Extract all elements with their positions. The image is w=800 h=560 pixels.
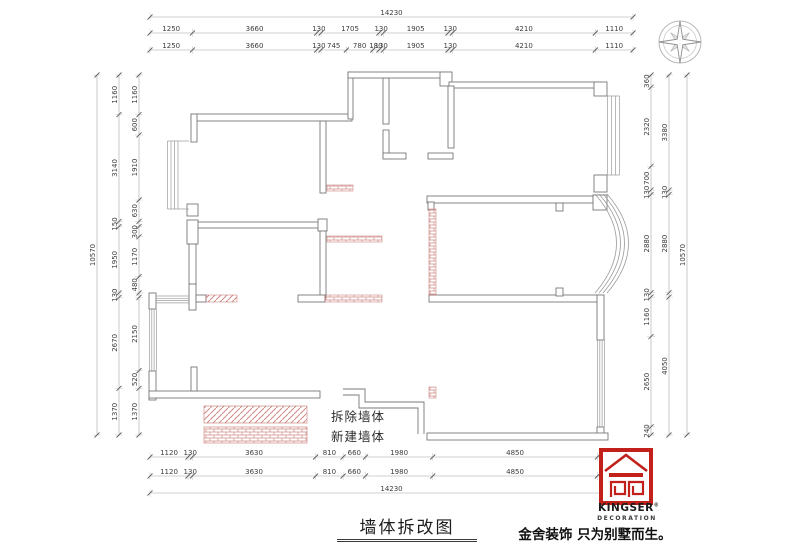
dim-label: 14230 bbox=[380, 485, 402, 493]
dim-label: 10570 bbox=[89, 244, 97, 266]
dim-label: 130 bbox=[111, 289, 119, 302]
dim-chain-right-overall: 10570 bbox=[679, 73, 691, 438]
dim-label: 360 bbox=[643, 74, 651, 87]
logo-tagline: 金舍装饰 只为别墅而生。 bbox=[499, 523, 691, 543]
legend-demolish-label: 拆除墙体 bbox=[331, 406, 385, 425]
dim-label: 130 bbox=[312, 42, 325, 50]
dim-label: 150 bbox=[111, 217, 119, 230]
dim-label: 1705 bbox=[341, 25, 359, 33]
dim-label: 4210 bbox=[515, 42, 533, 50]
logo-registered-mark: ® bbox=[654, 503, 660, 509]
dim-label: 1160 bbox=[131, 86, 139, 104]
dim-label: 1250 bbox=[162, 42, 180, 50]
dim-chain-bottom-inner: 11201303630810660198048501050 bbox=[148, 449, 636, 461]
dim-label: 2150 bbox=[131, 325, 139, 343]
dim-label: 1950 bbox=[111, 251, 119, 269]
dim-label: 130 bbox=[184, 449, 197, 457]
dim-label: 14230 bbox=[380, 9, 402, 17]
new-wall-swatch bbox=[204, 427, 307, 443]
demolish-swatch bbox=[204, 406, 307, 423]
compass-icon bbox=[659, 21, 701, 63]
dim-chain-top-overall: 14230 bbox=[148, 9, 636, 21]
dim-label: 130 bbox=[184, 468, 197, 476]
dim-label: 1980 bbox=[390, 468, 408, 476]
dim-label: 4850 bbox=[506, 449, 524, 457]
dim-label: 130 bbox=[312, 25, 325, 33]
legend-swatches bbox=[204, 406, 307, 443]
dim-label: 130 bbox=[661, 186, 669, 199]
dim-label: 1905 bbox=[407, 25, 425, 33]
dim-label: 1170 bbox=[131, 248, 139, 266]
drawing-title: 墙体拆改图 bbox=[337, 513, 477, 542]
dim-label: 520 bbox=[131, 373, 139, 386]
dim-label: 745 bbox=[327, 42, 340, 50]
dim-chain-top-outer: 125036601301705130190513042101110 bbox=[148, 25, 636, 37]
dim-label: 780 bbox=[353, 42, 366, 50]
dim-chain-bottom-overall: 14230 bbox=[148, 485, 636, 497]
dim-label: 130 bbox=[374, 42, 387, 50]
dim-label: 1120 bbox=[160, 449, 178, 457]
dim-label: 4850 bbox=[506, 468, 524, 476]
dim-label: 3660 bbox=[246, 25, 264, 33]
dim-label: 130 bbox=[643, 288, 651, 301]
dim-label: 810 bbox=[323, 449, 336, 457]
floorplan-sheet: 1423012503660130170513019051304210111012… bbox=[0, 0, 800, 560]
dim-label: 130 bbox=[444, 25, 457, 33]
dim-label: 1160 bbox=[111, 86, 119, 104]
dim-label: 1370 bbox=[131, 403, 139, 421]
dim-label: 2880 bbox=[643, 235, 651, 253]
dim-chain-top-inner: 12503660130745780180130190513042101110 bbox=[148, 42, 636, 54]
dim-label: 3630 bbox=[245, 449, 263, 457]
dim-label: 4050 bbox=[661, 357, 669, 375]
dim-chain-left-overall: 10570 bbox=[89, 73, 101, 438]
dim-label: 130 bbox=[444, 42, 457, 50]
dim-label: 1120 bbox=[160, 468, 178, 476]
dim-label: 700 bbox=[643, 172, 651, 185]
logo-icon bbox=[601, 450, 651, 503]
legend-new-wall-label: 新建墙体 bbox=[331, 426, 385, 445]
dim-label: 4210 bbox=[515, 25, 533, 33]
new-wall-layer bbox=[325, 185, 436, 398]
dim-label: 2670 bbox=[111, 334, 119, 352]
dim-label: 10570 bbox=[679, 244, 687, 266]
dim-label: 2650 bbox=[643, 373, 651, 391]
dim-label: 1905 bbox=[407, 42, 425, 50]
walls-layer bbox=[149, 72, 608, 440]
logo-brand-text: KINGSER® bbox=[598, 502, 656, 514]
dim-label: 3140 bbox=[111, 159, 119, 177]
dim-chain-right-mid: 338013028804050 bbox=[661, 73, 673, 438]
dim-label: 1160 bbox=[643, 308, 651, 326]
dim-label: 660 bbox=[348, 449, 361, 457]
dim-label: 3660 bbox=[246, 42, 264, 50]
dim-chain-left-mid: 11603140150195013026701370 bbox=[111, 73, 123, 438]
demolish-wall-layer bbox=[206, 295, 237, 302]
dim-label: 1980 bbox=[390, 449, 408, 457]
dim-label: 1250 bbox=[162, 25, 180, 33]
dim-label: 630 bbox=[131, 204, 139, 217]
dim-label: 660 bbox=[348, 468, 361, 476]
dim-label: 1110 bbox=[605, 25, 623, 33]
dim-chain-right-inner: 3602320700130288013011602650240 bbox=[643, 73, 655, 438]
dim-label: 1110 bbox=[605, 42, 623, 50]
dim-label: 810 bbox=[323, 468, 336, 476]
logo-sub-text: DECORATION bbox=[596, 515, 658, 522]
floor-plan-svg: 1423012503660130170513019051304210111012… bbox=[0, 0, 800, 560]
dim-label: 2880 bbox=[661, 235, 669, 253]
dim-label: 300 bbox=[131, 225, 139, 238]
dim-label: 3380 bbox=[661, 124, 669, 142]
dim-label: 1370 bbox=[111, 403, 119, 421]
dim-label: 130 bbox=[643, 186, 651, 199]
dim-label: 130 bbox=[374, 25, 387, 33]
dim-label: 2320 bbox=[643, 118, 651, 136]
dim-chain-bottom-outer: 11201303630810660198048501050 bbox=[148, 468, 636, 480]
dim-label: 480 bbox=[131, 278, 139, 291]
logo-brand: KINGSER bbox=[598, 502, 654, 514]
dim-label: 1910 bbox=[131, 159, 139, 177]
dim-label: 600 bbox=[131, 118, 139, 131]
dim-chain-left-inner: 11606001910630300117048021505201370 bbox=[131, 73, 143, 438]
dim-label: 3630 bbox=[245, 468, 263, 476]
